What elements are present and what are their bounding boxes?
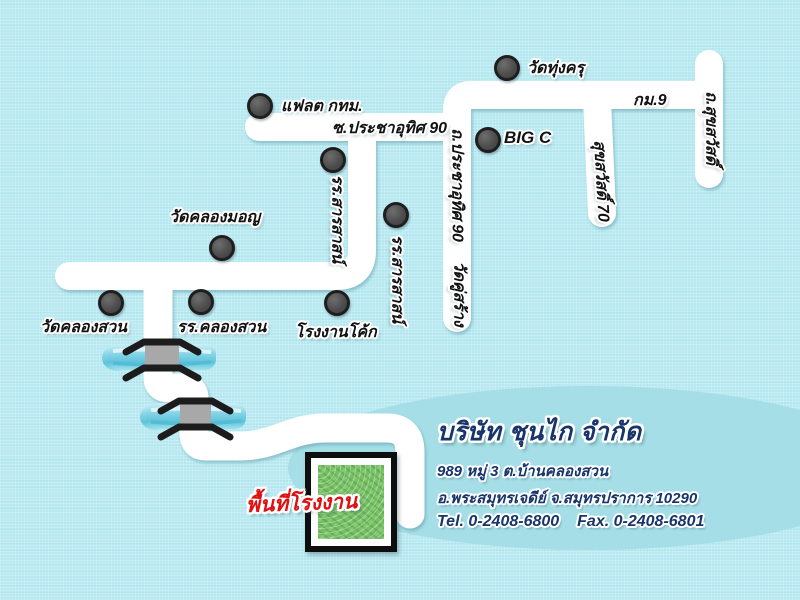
marker-big-c — [475, 127, 501, 153]
marker-flat-bangkok — [247, 93, 273, 119]
company-info: บริษัท ชุนไก จำกัด 989 หมู่ 3 ต.บ้านคลอง… — [437, 412, 704, 534]
marker-school-khlong-suan — [188, 289, 214, 315]
label-school-sarasas-lower: รร.สารสาสน์ — [385, 235, 410, 323]
marker-school-sarasas-upper — [320, 147, 346, 173]
label-wat-thung-khru: วัดทุ่งครุ — [527, 56, 584, 81]
marker-wat-thung-khru — [494, 55, 520, 81]
factory-area-label: พื้นที่โรงงาน — [245, 485, 357, 522]
label-big-c: BIG C — [504, 128, 551, 148]
company-address2: อ.พระสมุทรเจดีย์ จ.สมุทรปราการ 10290 — [437, 486, 704, 510]
label-wat-khu-sang: วัดคู่สร้าง — [447, 261, 472, 326]
marker-wat-khlong-mon — [209, 235, 235, 261]
label-wat-khlong-suan: วัดคลองสวน — [40, 315, 127, 340]
label-road-km9: กม.9 — [633, 88, 667, 113]
company-name: บริษัท ชุนไก จำกัด — [437, 412, 704, 452]
label-school-khlong-suan: รร.คลองสวน — [177, 315, 266, 340]
company-contact: Tel. 0-2408-6800Fax. 0-2408-6801 — [437, 513, 704, 531]
company-tel: Tel. 0-2408-6800 — [437, 513, 559, 530]
label-school-sarasas-upper: รร.สารสาสน์ — [325, 175, 350, 263]
marker-school-sarasas-lower — [383, 202, 409, 228]
label-road-soi-prachauthit-90: ซ.ประชาอุทิศ 90 — [332, 116, 447, 141]
label-wat-khlong-mon: วัดคลองมอญ — [169, 205, 260, 230]
label-coke-factory: โรงงานโค้ก — [295, 320, 377, 345]
map-canvas: วัดทุ่งครุ แฟลต กทม. BIG C รร.สารสาสน์ ร… — [0, 0, 800, 600]
company-address1: 989 หมู่ 3 ต.บ้านคลองสวน — [437, 459, 704, 483]
label-road-suksawat: ถ.สุขสวัสดิ์ — [699, 91, 724, 165]
marker-coke-factory — [324, 290, 350, 316]
company-fax: Fax. 0-2408-6801 — [577, 513, 704, 530]
marker-wat-khlong-suan — [98, 290, 124, 316]
label-road-suksawat-70: สุขสวัสดิ์ 70 — [586, 139, 615, 222]
label-road-prachauthit-90: ถ.ประชาอุทิศ 90 — [445, 128, 470, 242]
